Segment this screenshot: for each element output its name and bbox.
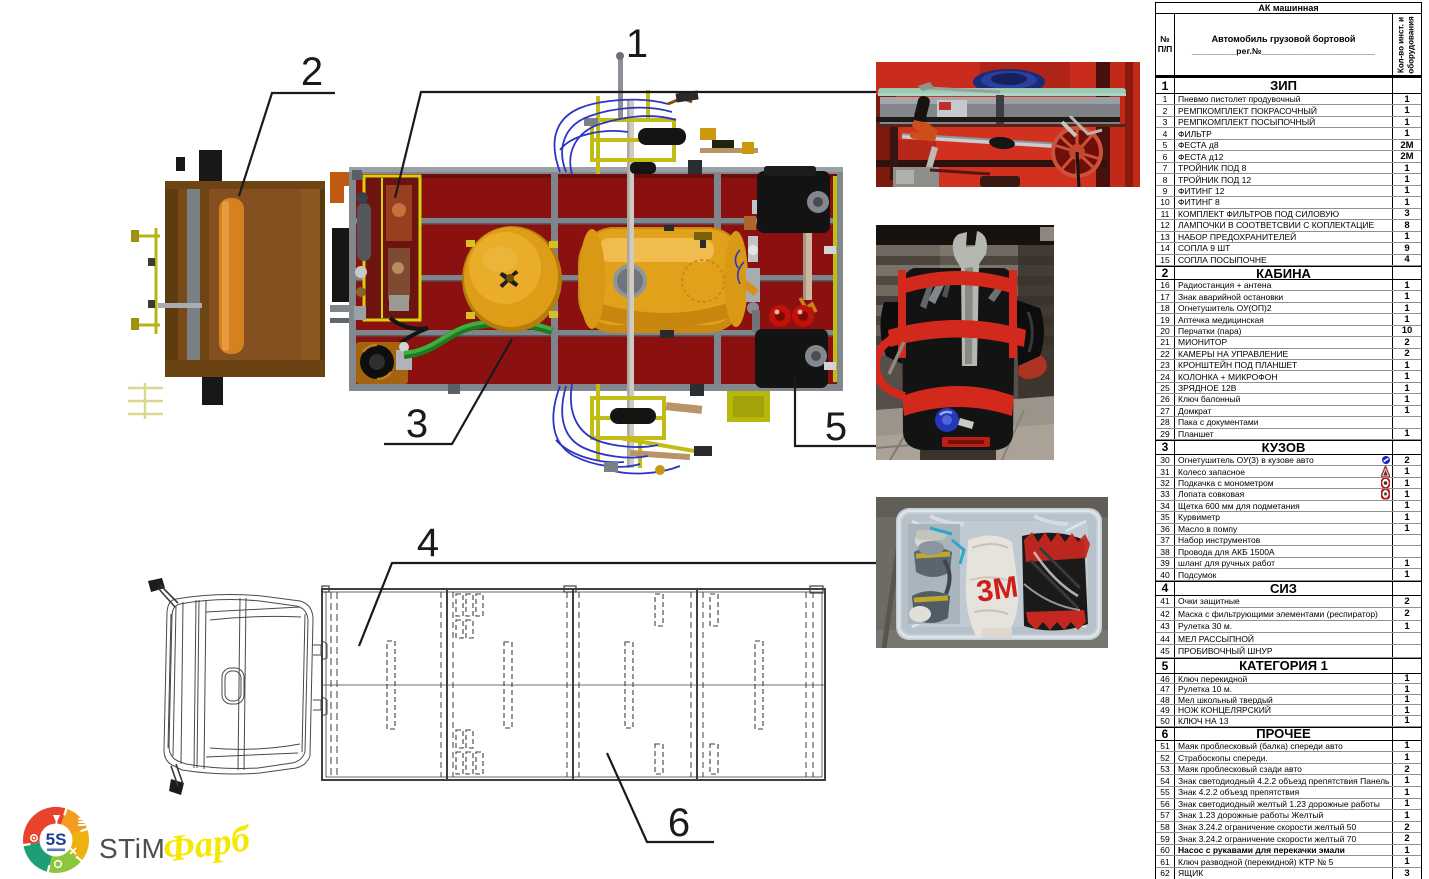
svg-text:STiM: STiM [99, 833, 165, 864]
svg-text:3: 3 [406, 402, 428, 446]
svg-text:Фарб: Фарб [161, 818, 254, 871]
svg-text:5S: 5S [46, 830, 67, 849]
svg-text:3M: 3M [974, 570, 1020, 608]
svg-text:5: 5 [825, 405, 847, 449]
svg-text:6: 6 [668, 801, 690, 845]
svg-text:1: 1 [626, 22, 648, 66]
svg-text:2: 2 [301, 50, 323, 94]
svg-text:4: 4 [417, 521, 439, 565]
